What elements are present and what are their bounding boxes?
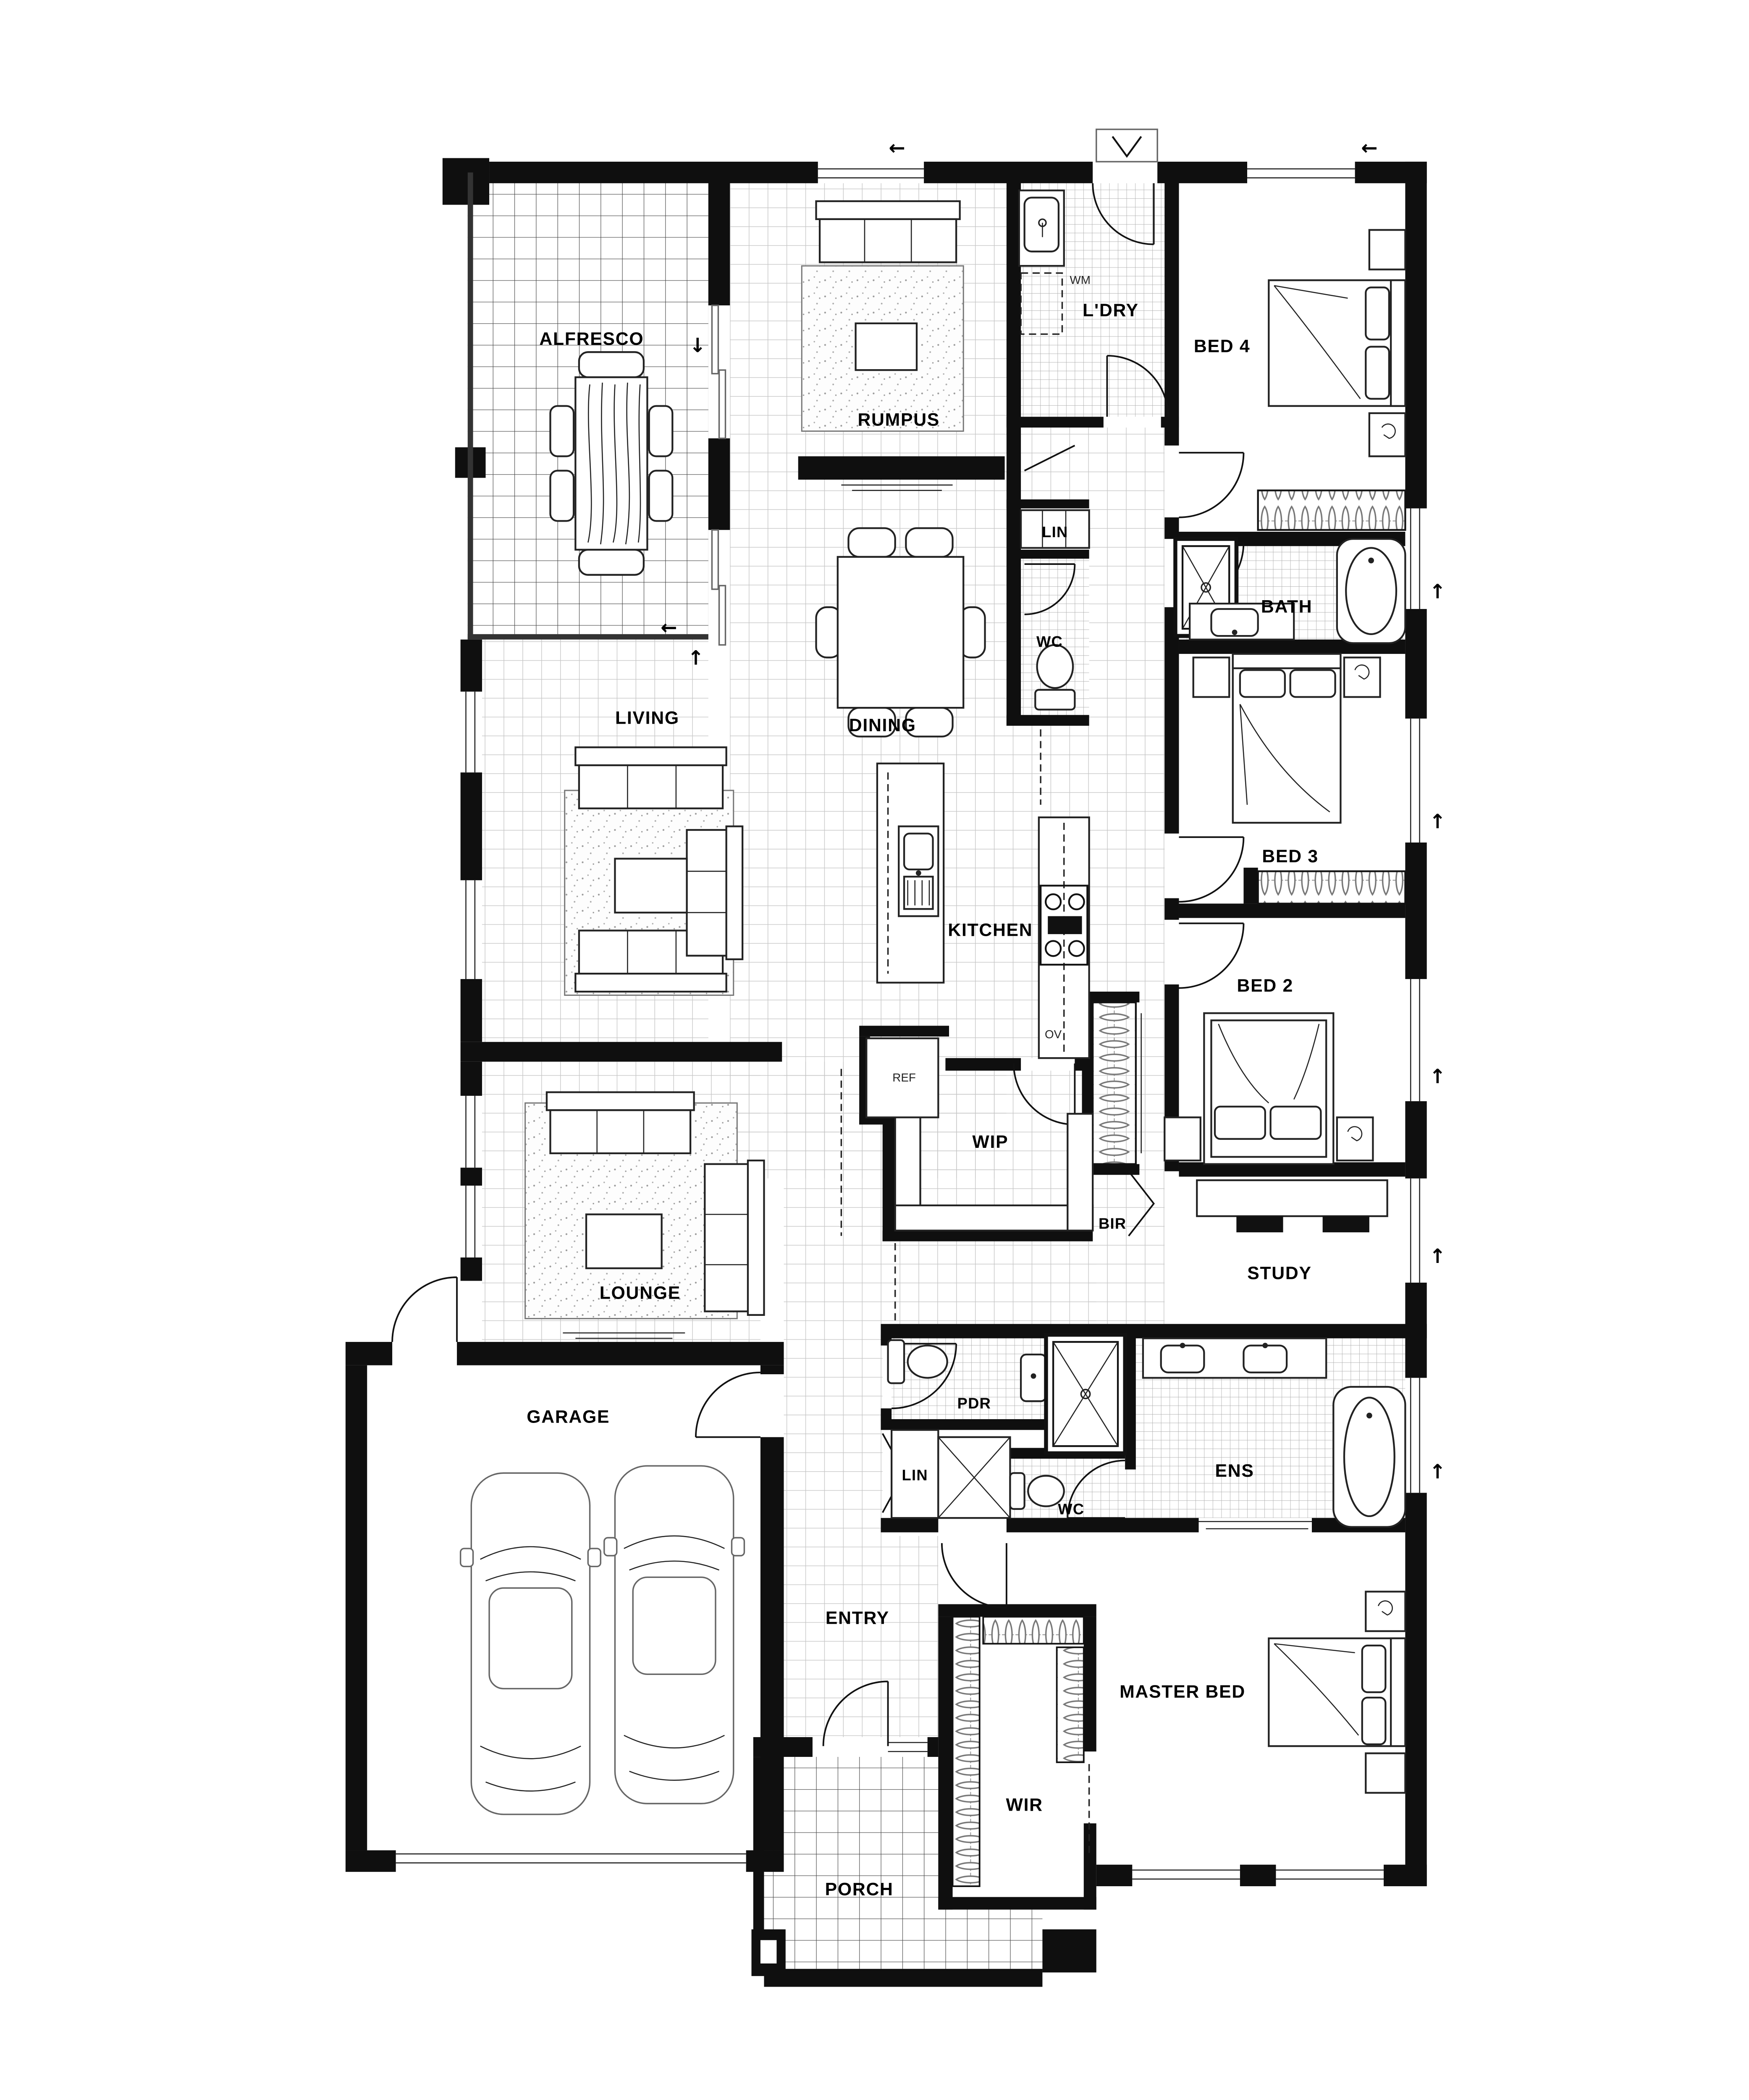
bed4-robe — [1258, 491, 1405, 530]
ens-tub — [1333, 1387, 1405, 1527]
floor-plan: ← ← ↓ ← ↑ ↑ ↑ ↑ ↑ ↑ ALFRESCO RUMPUS L'DR… — [0, 0, 1749, 2100]
lounge-sofa — [547, 1092, 694, 1153]
kitchen-island — [877, 764, 944, 983]
ens-shower — [1046, 1335, 1125, 1453]
label-living: LIVING — [615, 708, 679, 728]
label-ref: REF — [892, 1071, 916, 1084]
label-lin-hall: LIN — [902, 1466, 928, 1483]
room-rumpus — [802, 201, 963, 431]
bed3-side-table — [1193, 657, 1230, 697]
arrow-right-ens: ↑ — [1429, 1460, 1446, 1483]
label-wc-top: WC — [1036, 633, 1063, 650]
hall-cupboard — [938, 1437, 1010, 1518]
label-bir: BIR — [1099, 1215, 1126, 1232]
label-bed4: BED 4 — [1194, 336, 1251, 356]
bed4-side-table-lamp — [1369, 413, 1405, 457]
arrow-alfresco-left: ← — [661, 616, 677, 639]
label-dining: DINING — [849, 715, 916, 735]
arrow-top-left-2: ← — [1361, 136, 1377, 160]
kitchen-bench — [1039, 817, 1089, 1058]
lounge-chaise — [705, 1160, 764, 1315]
label-wc-ens: WC — [1058, 1501, 1084, 1518]
master-bed — [1269, 1638, 1405, 1746]
bed2-bir-robe — [1093, 1003, 1136, 1164]
label-bed2: BED 2 — [1237, 976, 1294, 996]
bed3-bed — [1233, 654, 1341, 823]
arrow-top-left-1: ← — [889, 136, 905, 160]
rumpus-sofa — [816, 201, 960, 262]
master-side-table — [1366, 1753, 1405, 1793]
label-wip: WIP — [972, 1132, 1008, 1152]
laundry-tub — [1019, 190, 1064, 266]
label-garage: GARAGE — [527, 1407, 610, 1427]
dining-table-set — [816, 528, 985, 736]
label-wm: WM — [1070, 273, 1091, 286]
wip-bench-right — [1067, 1114, 1093, 1231]
bed3-robe — [1258, 871, 1405, 903]
label-wir: WIR — [1006, 1795, 1043, 1815]
room-garage — [461, 1466, 745, 1814]
arrow-right-bath: ↑ — [1429, 580, 1446, 603]
floor-plan-page: ← ← ↓ ← ↑ ↑ ↑ ↑ ↑ ↑ ALFRESCO RUMPUS L'DR… — [0, 0, 1749, 2100]
label-bed3: BED 3 — [1262, 846, 1319, 866]
room-wc-top — [1035, 645, 1075, 710]
room-bed2 — [1093, 1003, 1373, 1164]
label-rumpus: RUMPUS — [857, 410, 940, 430]
bed2-side-table-lamp — [1337, 1117, 1373, 1160]
bed2-side-table — [1164, 1117, 1201, 1160]
room-wc-ens — [1010, 1473, 1064, 1509]
living-sofa-top — [575, 747, 726, 808]
label-study: STUDY — [1247, 1263, 1312, 1283]
rumpus-coffee-table — [856, 323, 917, 370]
pdr-sink — [1021, 1354, 1046, 1401]
label-lounge: LOUNGE — [600, 1283, 681, 1303]
room-dining — [816, 528, 985, 736]
arrow-right-study: ↑ — [1429, 1245, 1446, 1268]
garage-car-2 — [604, 1466, 745, 1803]
garage-car-1 — [461, 1473, 601, 1814]
arrow-alfresco-down: ↓ — [689, 334, 705, 357]
label-entry: ENTRY — [826, 1608, 889, 1628]
study-desk — [1197, 1180, 1387, 1232]
label-master: MASTER BED — [1120, 1682, 1246, 1702]
label-porch: PORCH — [825, 1879, 894, 1899]
master-side-table-lamp — [1366, 1592, 1405, 1631]
label-lin-top: LIN — [1042, 523, 1068, 541]
room-master — [953, 1592, 1405, 1886]
label-ens: ENS — [1215, 1461, 1254, 1481]
room-study — [1197, 1180, 1387, 1232]
label-alfresco: ALFRESCO — [539, 329, 644, 349]
arrow-right-bed3: ↑ — [1429, 810, 1446, 833]
label-pdr: PDR — [957, 1394, 991, 1412]
wir-robes — [953, 1617, 1084, 1886]
label-ov: OV — [1045, 1028, 1062, 1041]
ens-vanity — [1143, 1338, 1326, 1378]
label-bath: BATH — [1261, 597, 1312, 617]
living-sofa-right — [687, 826, 743, 959]
arrow-right-bed2: ↑ — [1429, 1065, 1446, 1088]
bed4-bed — [1269, 280, 1405, 406]
label-ldry: L'DRY — [1083, 300, 1139, 320]
arrow-alfresco-up: ↑ — [687, 647, 704, 670]
lounge-coffee-table — [586, 1214, 662, 1268]
bed3-side-table-lamp — [1344, 657, 1380, 697]
wip-bench-bottom — [895, 1205, 1093, 1231]
bed2-bed — [1204, 1013, 1333, 1164]
living-coffee-table — [615, 858, 687, 912]
room-bed4 — [1258, 230, 1405, 530]
bed4-side-table — [1369, 230, 1405, 269]
bath-tub — [1337, 539, 1405, 643]
wc-top-toilet — [1035, 645, 1075, 710]
label-kitchen: KITCHEN — [948, 920, 1033, 940]
